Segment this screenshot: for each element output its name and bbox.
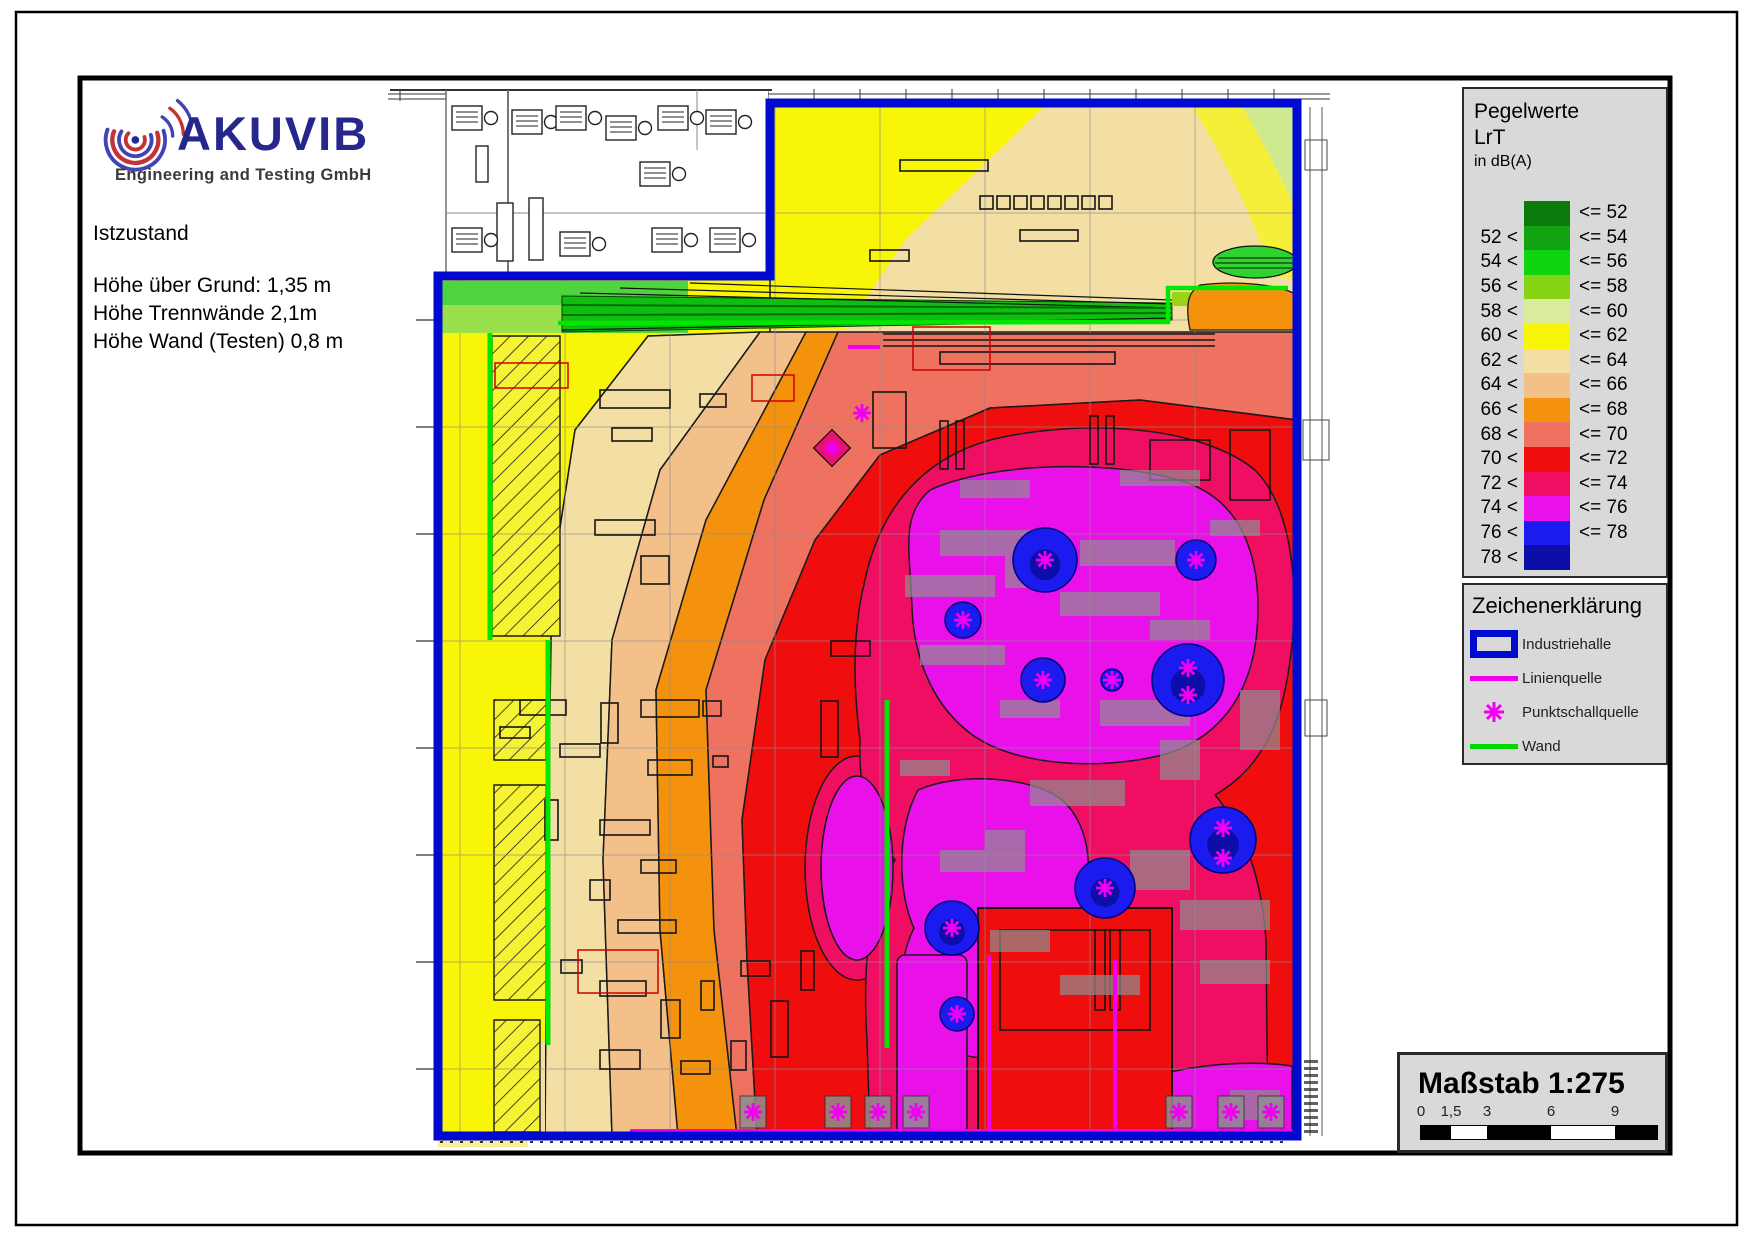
symbol-label: Linienquelle	[1522, 670, 1602, 687]
logo-brand: AKUVIB	[177, 110, 369, 157]
legend-scale: <= 5252 <<= 5454 <<= 5656 <<= 5858 <<= 6…	[1466, 201, 1666, 570]
legend-row: 66 <<= 68	[1466, 398, 1666, 423]
legend-color-swatch	[1524, 521, 1570, 546]
point-source-icon	[1466, 699, 1522, 725]
legend-color-swatch	[1524, 422, 1570, 447]
point-source	[943, 919, 961, 937]
office-area	[390, 90, 772, 276]
symbol-label: Industriehalle	[1522, 636, 1611, 653]
legend-row: 60 <<= 62	[1466, 324, 1666, 349]
scale-tick-label: 3	[1483, 1103, 1491, 1120]
legend-unit: in dB(A)	[1474, 153, 1532, 171]
point-source	[1096, 879, 1114, 897]
legend-color-swatch	[1524, 398, 1570, 423]
logo-subtitle: Engineering and Testing GmbH	[115, 166, 372, 185]
logo: AKUVIB Engineering and Testing GmbH	[95, 88, 385, 198]
symbol-legend-panel: Zeichenerklärung IndustriehalleLinienque…	[1462, 583, 1668, 765]
legend-row: 56 <<= 58	[1466, 275, 1666, 300]
legend-row: 74 <<= 76	[1466, 496, 1666, 521]
line-source-icon	[1466, 676, 1522, 681]
wall-icon	[1466, 744, 1522, 749]
point-source	[1214, 849, 1232, 867]
point-source	[829, 1103, 847, 1121]
point-source	[1222, 1103, 1240, 1121]
point-source	[1187, 551, 1205, 569]
point-source	[954, 611, 972, 629]
scale-panel: Maßstab 1:275 01,5369	[1397, 1052, 1668, 1153]
symbol-item-line: Linienquelle	[1466, 661, 1666, 695]
scale-tick-label: 1,5	[1441, 1103, 1462, 1120]
symbol-label: Punktschallquelle	[1522, 704, 1639, 721]
scale-title: Maßstab 1:275	[1418, 1067, 1625, 1101]
legend-color-swatch	[1524, 545, 1570, 570]
legend-color-swatch	[1524, 349, 1570, 374]
legend-row: 62 <<= 64	[1466, 349, 1666, 374]
scenario-title: Istzustand	[93, 220, 189, 248]
scale-bar	[1420, 1125, 1658, 1140]
legend-row: 68 <<= 70	[1466, 422, 1666, 447]
legend-color-swatch	[1524, 250, 1570, 275]
point-source	[1262, 1103, 1280, 1121]
point-source	[744, 1103, 762, 1121]
point-source	[1034, 671, 1052, 689]
hall-outline-icon	[1466, 630, 1522, 658]
height-line-1: Höhe über Grund: 1,35 m	[93, 272, 343, 300]
symbol-list: IndustriehalleLinienquellePunktschallque…	[1466, 627, 1666, 763]
legend-color-swatch	[1524, 324, 1570, 349]
level-legend-panel: Pegelwerte LrT in dB(A) <= 5252 <<= 5454…	[1462, 87, 1668, 578]
point-source	[1170, 1103, 1188, 1121]
legend-color-swatch	[1524, 201, 1570, 226]
legend-row: 54 <<= 56	[1466, 250, 1666, 275]
legend-row: 58 <<= 60	[1466, 299, 1666, 324]
legend-subtitle: LrT	[1474, 125, 1506, 151]
legend-row: 52 <<= 54	[1466, 226, 1666, 251]
point-source	[948, 1005, 966, 1023]
legend-color-swatch	[1524, 226, 1570, 251]
drawing-sheet: AKUVIB Engineering and Testing GmbH Istz…	[0, 0, 1754, 1240]
legend-row: 70 <<= 72	[1466, 447, 1666, 472]
symbol-legend-title: Zeichenerklärung	[1472, 593, 1642, 619]
point-source	[1179, 686, 1197, 704]
symbol-label: Wand	[1522, 738, 1561, 755]
point-source	[1103, 671, 1121, 689]
symbol-item-hall: Industriehalle	[1466, 627, 1666, 661]
point-source	[907, 1103, 925, 1121]
symbol-item-wall: Wand	[1466, 729, 1666, 763]
scale-tick-label: 0	[1417, 1103, 1425, 1120]
legend-color-swatch	[1524, 373, 1570, 398]
legend-row: <= 52	[1466, 201, 1666, 226]
point-source	[823, 439, 841, 457]
legend-row: 64 <<= 66	[1466, 373, 1666, 398]
legend-color-swatch	[1524, 447, 1570, 472]
plan-strip-right	[1303, 107, 1329, 1136]
point-source	[1036, 551, 1054, 569]
point-source	[853, 404, 871, 422]
legend-color-swatch	[1524, 472, 1570, 497]
legend-color-swatch	[1524, 496, 1570, 521]
scale-tick-label: 6	[1547, 1103, 1555, 1120]
symbol-item-point: Punktschallquelle	[1466, 695, 1666, 729]
legend-color-swatch	[1524, 275, 1570, 300]
scale-tick-label: 9	[1611, 1103, 1619, 1120]
legend-row: 76 <<= 78	[1466, 521, 1666, 546]
legend-color-swatch	[1524, 299, 1570, 324]
height-line-2: Höhe Trennwände 2,1m	[93, 300, 343, 328]
height-info: Höhe über Grund: 1,35 m Höhe Trennwände …	[93, 272, 343, 356]
point-source	[1214, 819, 1232, 837]
point-source	[1179, 659, 1197, 677]
legend-title: Pegelwerte	[1474, 99, 1579, 125]
legend-row: 72 <<= 74	[1466, 472, 1666, 497]
point-source	[869, 1103, 887, 1121]
height-line-3: Höhe Wand (Testen) 0,8 m	[93, 328, 343, 356]
legend-row: 78 <	[1466, 545, 1666, 570]
